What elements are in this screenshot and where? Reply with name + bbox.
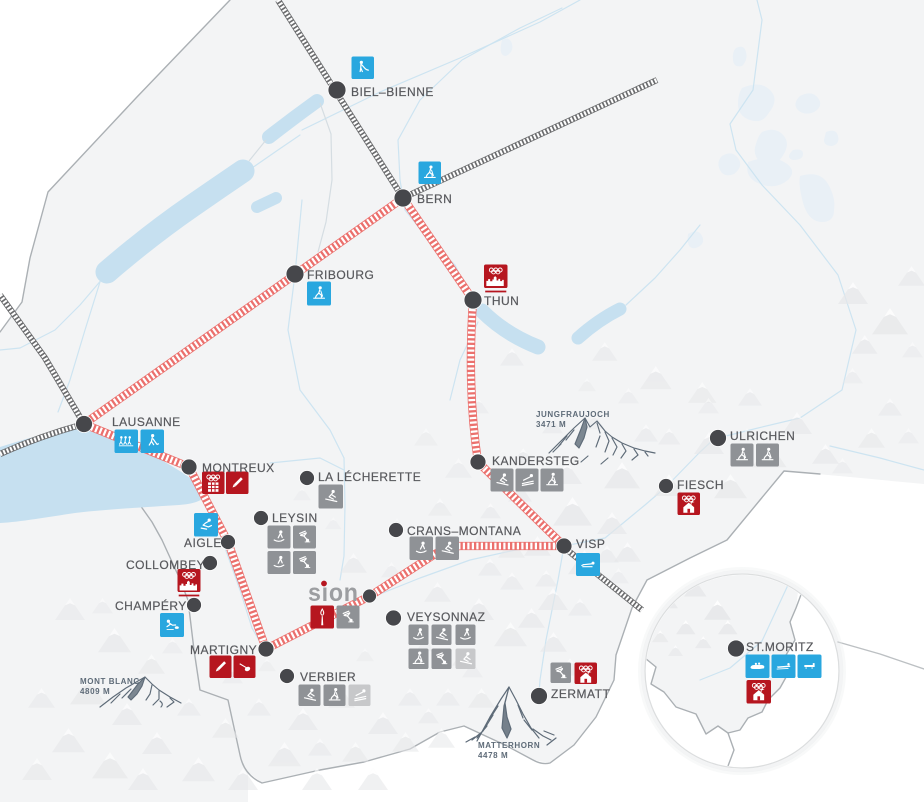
svg-text:MARTIGNY: MARTIGNY	[190, 643, 257, 657]
svg-text:CRANS–MONTANA: CRANS–MONTANA	[407, 524, 521, 538]
svg-text:ULRICHEN: ULRICHEN	[730, 429, 795, 443]
svg-text:ST.MORITZ: ST.MORITZ	[746, 640, 814, 654]
svg-text:VISP: VISP	[576, 537, 605, 551]
svg-text:FRIBOURG: FRIBOURG	[307, 268, 374, 282]
svg-text:AIGLE: AIGLE	[184, 536, 222, 550]
svg-text:ZERMATT: ZERMATT	[551, 687, 610, 701]
svg-text:BERN: BERN	[417, 192, 452, 206]
svg-text:LAUSANNE: LAUSANNE	[112, 415, 181, 429]
svg-text:MATTERHORN: MATTERHORN	[478, 741, 540, 750]
svg-text:KANDERSTEG: KANDERSTEG	[492, 454, 580, 468]
svg-text:LEYSIN: LEYSIN	[272, 511, 318, 525]
svg-text:FIESCH: FIESCH	[677, 478, 724, 492]
svg-text:VERBIER: VERBIER	[300, 670, 356, 684]
svg-text:VEYSONNAZ: VEYSONNAZ	[407, 610, 486, 624]
svg-text:4478 M: 4478 M	[478, 751, 508, 760]
svg-text:JUNGFRAUJOCH: JUNGFRAUJOCH	[536, 410, 610, 419]
svg-text:3471 M: 3471 M	[536, 420, 566, 429]
svg-text:COLLOMBEY: COLLOMBEY	[126, 558, 205, 572]
svg-text:MONTREUX: MONTREUX	[202, 461, 275, 475]
svg-text:THUN: THUN	[484, 294, 519, 308]
svg-text:LA LÉCHERETTE: LA LÉCHERETTE	[318, 469, 421, 484]
svg-text:4809 M: 4809 M	[80, 687, 110, 696]
svg-text:CHAMPÉRY: CHAMPÉRY	[115, 598, 187, 613]
svg-text:BIEL–BIENNE: BIEL–BIENNE	[351, 85, 434, 99]
svg-text:MONT BLANC: MONT BLANC	[80, 677, 140, 686]
svg-text:sıon: sıon	[308, 579, 359, 607]
